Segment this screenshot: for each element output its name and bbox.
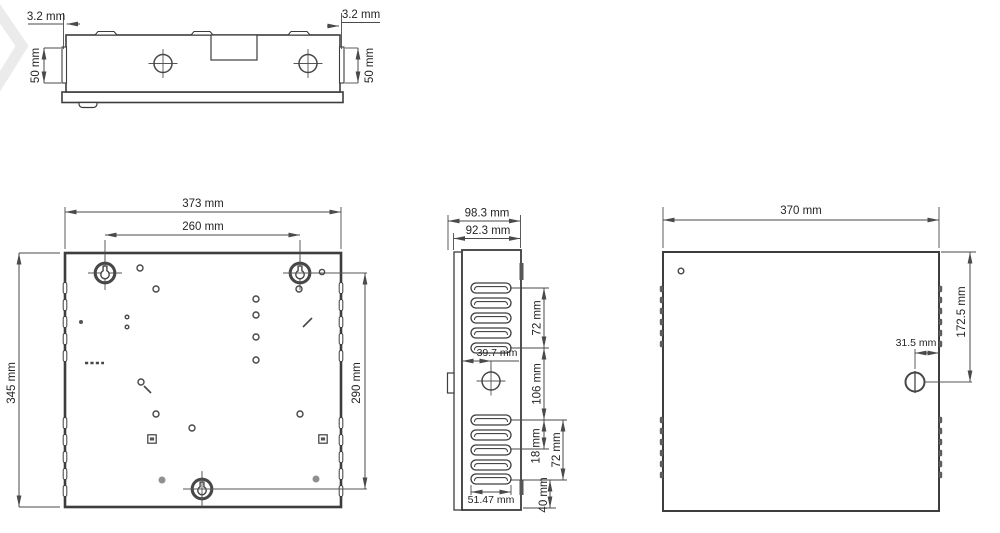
- front-view-body: [65, 253, 341, 507]
- side-flange-right: [340, 47, 345, 83]
- dim-label-vent-lower-span: 72 mm: [551, 432, 563, 467]
- dim-label-depth-body: 92.3 mm: [466, 225, 511, 237]
- dim-label-overall-width: 373 mm: [182, 198, 224, 210]
- dim-label-lip-left: 3.2 mm: [27, 11, 65, 23]
- dim-label-louver-pitch: 18 mm: [531, 428, 543, 463]
- top-tab: [288, 32, 310, 36]
- top-tab: [95, 32, 117, 36]
- vent-group-upper: [471, 283, 511, 353]
- top-tab: [191, 32, 213, 36]
- dim-label-lip-right: 3.2 mm: [342, 9, 380, 21]
- door-lip: [454, 252, 462, 510]
- top-view: 3.2 mm 3.2 mm 50 mm 50 mm: [27, 9, 380, 108]
- dim-depth-body: 92.3 mm: [454, 225, 521, 250]
- dim-label-keyhole-spacing-horizontal: 260 mm: [182, 221, 224, 233]
- dim-label-side-height-right: 50 mm: [364, 48, 376, 83]
- top-notch: [211, 35, 257, 60]
- stud-dot: [313, 476, 320, 483]
- side-flange-left: [62, 47, 67, 83]
- door-panel: [663, 252, 939, 511]
- dim-label-lock-from-top: 172.5 mm: [956, 286, 968, 337]
- dim-label-vent-group-gap: 106 mm: [532, 363, 544, 405]
- terminal-symbol: [319, 435, 327, 443]
- dim-side-height-right: 50 mm: [345, 48, 376, 83]
- dim-overall-height: 345 mm: [6, 253, 60, 507]
- dim-lock-from-top: 172.5 mm: [941, 252, 976, 382]
- dim-label-side-height-left: 50 mm: [30, 48, 42, 83]
- dim-label-knockout-offset: 39.7 mm: [477, 347, 518, 359]
- dim-label-bottom-offset: 40 mm: [538, 477, 550, 512]
- drawing-stage: 3.2 mm 3.2 mm 50 mm 50 mm: [0, 0, 1000, 533]
- hinge-tab-bottom: [520, 480, 524, 495]
- dim-label-keyhole-spacing-vertical: 290 mm: [351, 362, 363, 404]
- plate-dot: [79, 320, 83, 324]
- dim-keyhole-spacing-vertical: 290 mm: [351, 273, 365, 489]
- dim-bottom-offset: 40 mm: [523, 477, 556, 512]
- dim-label-depth-overall: 98.3 mm: [465, 208, 510, 220]
- stud-dot: [159, 477, 166, 484]
- flange-bump: [79, 103, 97, 108]
- door-view: 370 mm 172.5 mm 31.5 mm: [660, 205, 976, 511]
- vent-group-lower: [471, 415, 511, 484]
- dimension-drawing-canvas: 3.2 mm 3.2 mm 50 mm 50 mm: [0, 0, 1000, 533]
- watermark-chevron: [0, 2, 22, 94]
- dim-label-lock-from-edge: 31.5 mm: [896, 337, 937, 349]
- side-tab: [448, 373, 455, 393]
- dim-label-overall-height: 345 mm: [6, 362, 18, 404]
- top-view-flange: [62, 92, 343, 103]
- hinge-tab-top: [520, 263, 524, 280]
- terminal-symbol: [148, 435, 156, 443]
- dim-label-vent-upper-span: 72 mm: [532, 300, 544, 335]
- dim-label-louver-width: 51.47 mm: [468, 494, 515, 506]
- dim-side-height-left: 50 mm: [30, 48, 61, 83]
- dim-door-width: 370 mm: [663, 205, 939, 248]
- front-view: 373 mm 260 mm 345 mm 290 mm: [6, 198, 367, 507]
- side-view: 98.3 mm 92.3 mm 72 mm 106 mm 18 mm 72 mm: [448, 208, 568, 513]
- dim-label-door-width: 370 mm: [780, 205, 822, 217]
